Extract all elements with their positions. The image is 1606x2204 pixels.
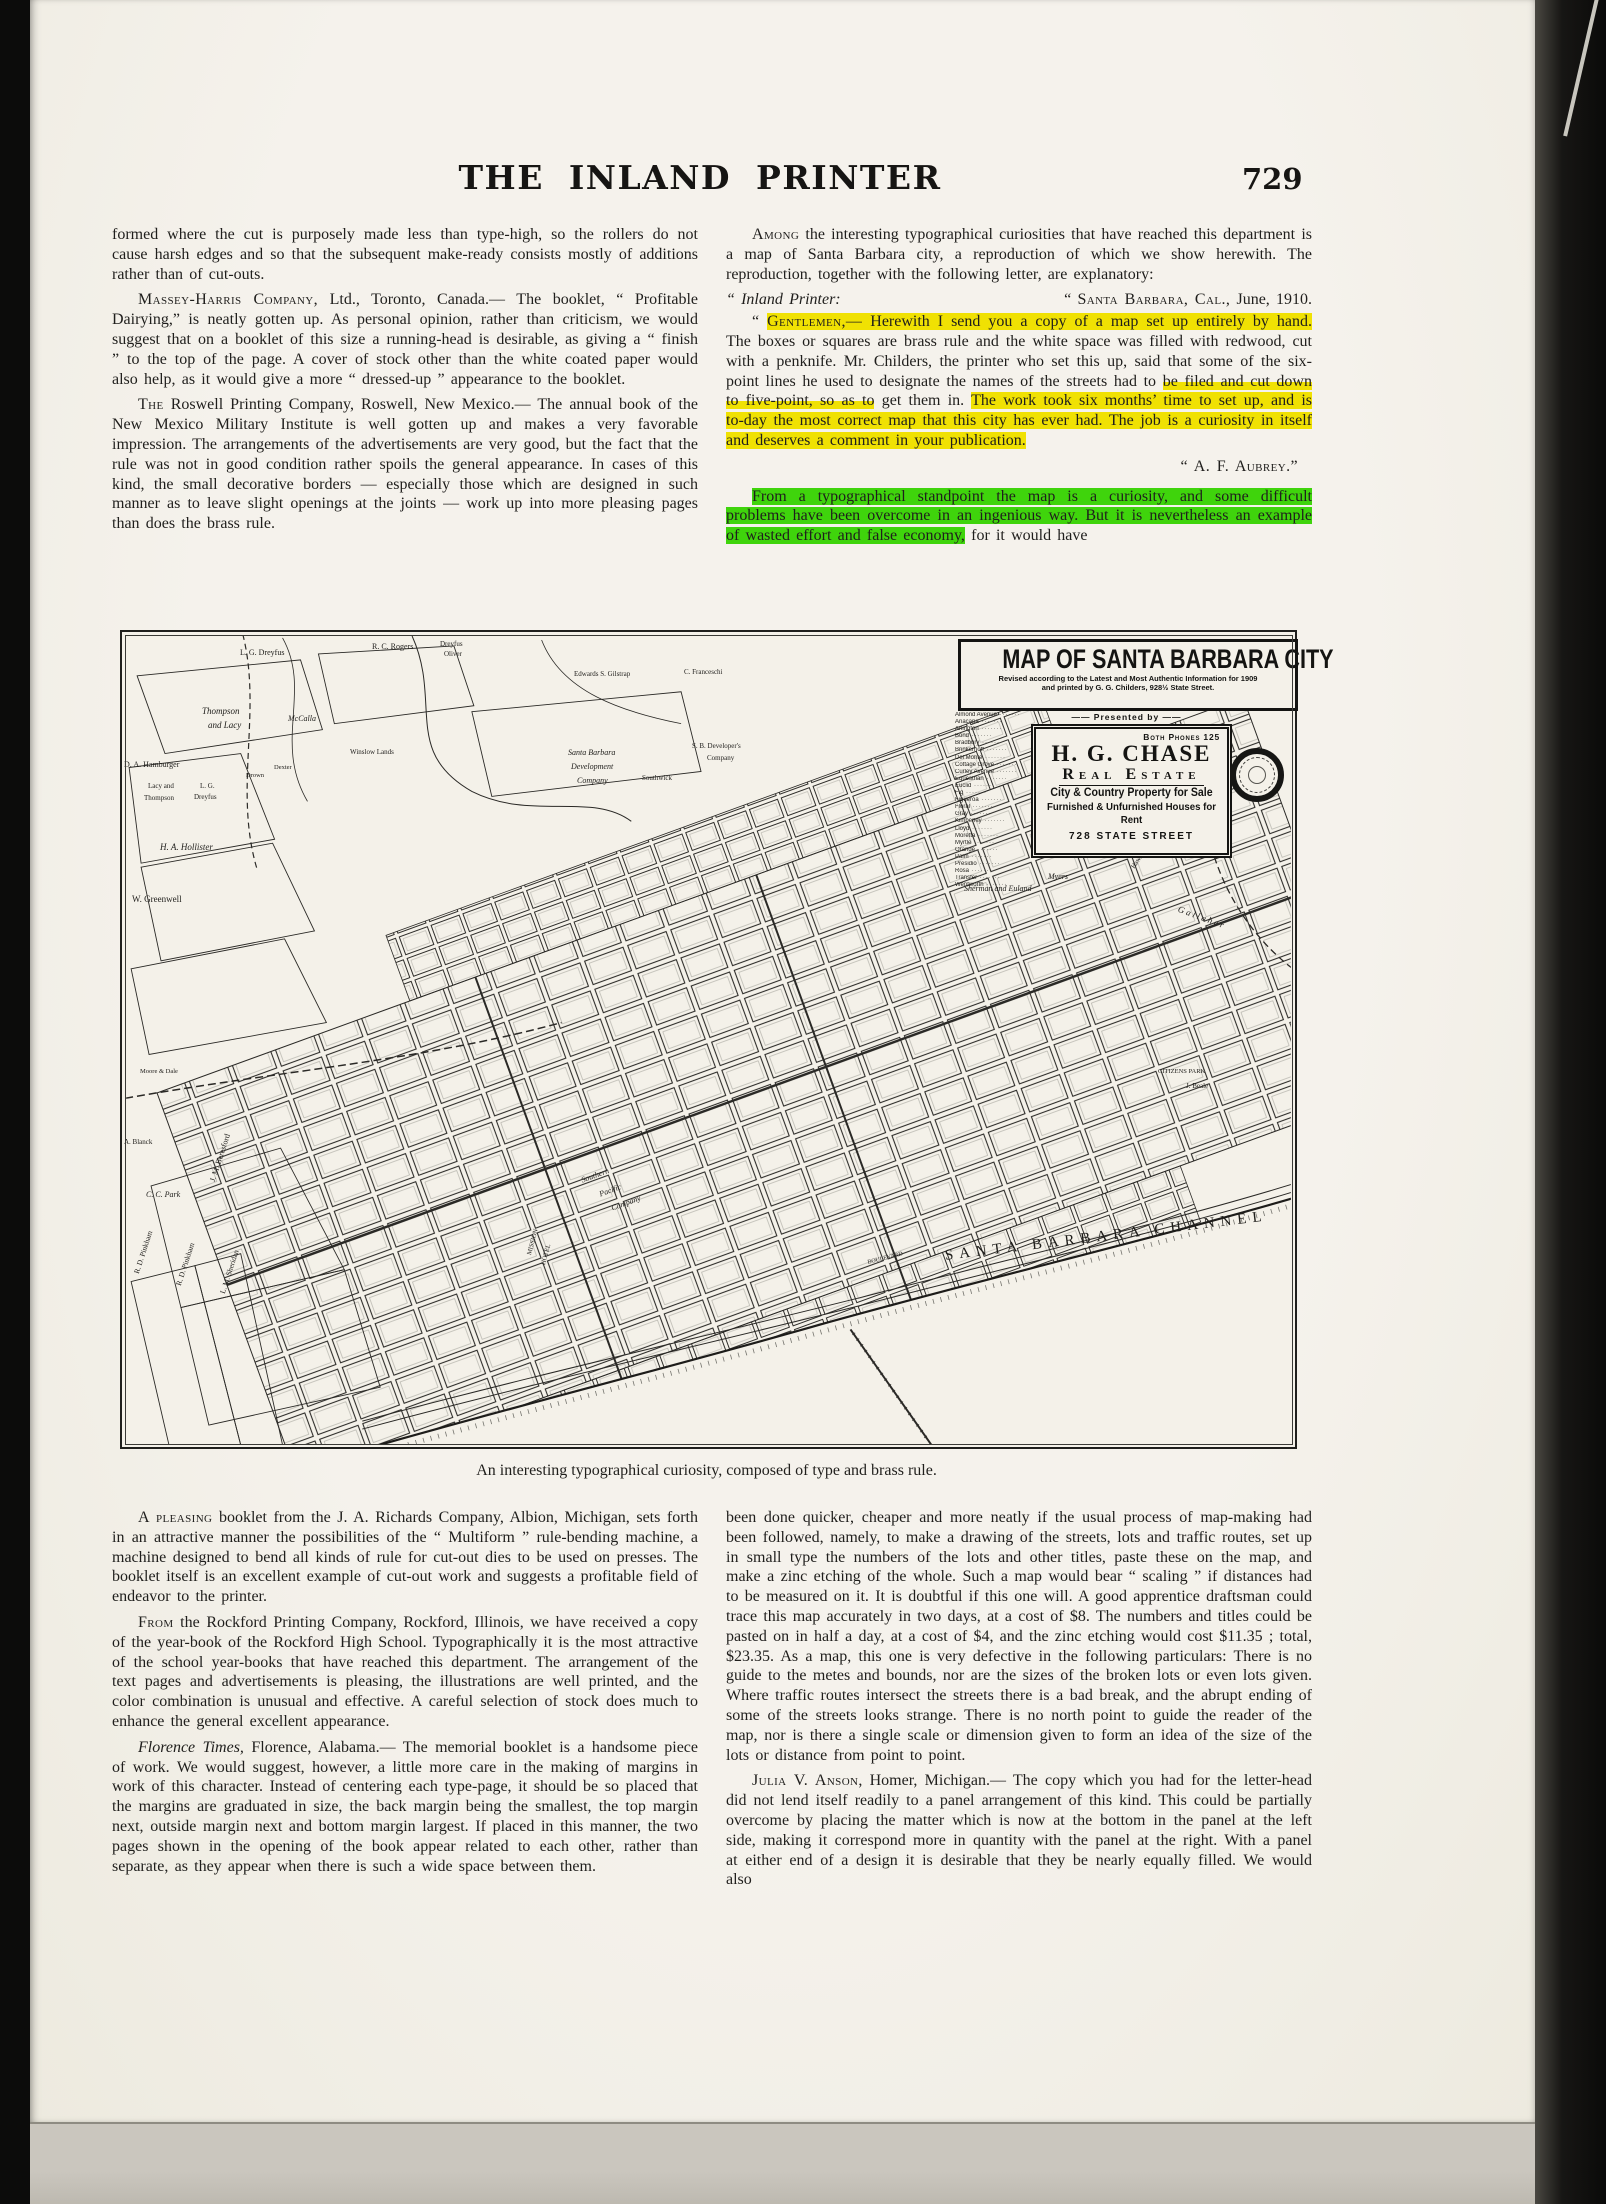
street-index-row: Presidio	[955, 861, 1029, 868]
ad-service-line: Furnished & Unfurnished Houses for Rent	[1044, 801, 1220, 827]
map-label: Edwards S. Gilstrap	[574, 670, 630, 678]
street-index-row: Arlington	[955, 726, 1029, 733]
paragraph-lead: Among	[752, 226, 799, 243]
map-label: J. M. Beresford	[208, 1133, 232, 1183]
scanned-magazine-page: { "header": { "title": "THE INLAND PRINT…	[0, 0, 1606, 2204]
map-label: J. Beale	[1186, 1082, 1208, 1090]
map-label: L. M. Sheridan	[218, 1249, 241, 1295]
street-index-row: Curley Avenue	[955, 769, 1029, 776]
bottom-right-column: been done quicker, cheaper and more neat…	[726, 1508, 1312, 1896]
ad-company-name: H. G. CHASE	[1036, 742, 1227, 766]
street-index-row: Wentworth	[955, 882, 1029, 889]
street-index: Almond AvenueAnacapaArlingtonBondBradbur…	[955, 712, 1029, 889]
city-seal-icon	[1230, 748, 1284, 802]
map-label: Pacific	[598, 1182, 622, 1198]
street-index-row: Brinkerhoff	[955, 747, 1029, 754]
ad-business-line: Real Estate	[1059, 766, 1203, 786]
street-index-row: Moretta	[955, 833, 1029, 840]
letter-dateline: “ Santa Barbara, Cal., June, 1910.	[1064, 290, 1312, 310]
map-label: Dexter	[274, 764, 292, 771]
figure-caption: An interesting typographical curiosity, …	[120, 1462, 1293, 1480]
paragraph-text: the interesting typographical curiositie…	[726, 226, 1312, 283]
map-label: HOTEL	[540, 1243, 552, 1265]
map-label: C. C. Park	[146, 1190, 180, 1199]
scan-bottom-edge	[30, 2122, 1535, 2204]
map-label: Southern	[580, 1166, 610, 1184]
highlighted-text: Gentlemen,—	[767, 313, 862, 330]
street-index-row: Equestrian	[955, 776, 1029, 783]
bottom-columns: A pleasing booklet from the J. A. Richar…	[112, 1508, 1312, 1896]
map-label: D. A. Hamburger	[124, 760, 179, 769]
map-label: Moore & Dale	[140, 1068, 178, 1075]
paragraph-lead: Florence Times,	[138, 1739, 244, 1756]
street-index-row: Del Monte	[955, 755, 1029, 762]
map-label: C. Franceschi	[684, 668, 723, 676]
page-number: 729	[1242, 162, 1303, 196]
map-label: Thompson	[144, 794, 174, 802]
map-label: BOULEVARD	[867, 1251, 904, 1266]
paragraph: A pleasing booklet from the J. A. Richar…	[112, 1508, 698, 1607]
paragraph: Among the interesting typographical curi…	[726, 225, 1312, 284]
street-index-row: Orange	[955, 847, 1029, 854]
map-label: R. D. Pinkham	[174, 1242, 196, 1287]
map-label: Winslow Lands	[350, 748, 394, 756]
paragraph: formed where the cut is purposely made l…	[112, 225, 698, 284]
street-index-row: Lloyd	[955, 826, 1029, 833]
ad-address: 728 STATE STREET	[1036, 831, 1227, 842]
map-label: Santa Barbara	[568, 748, 615, 757]
presented-by-label: —— Presented by ——	[1031, 712, 1222, 722]
letter-head: “ Inland Printer: “ Santa Barbara, Cal.,…	[726, 290, 1312, 310]
top-columns: formed where the cut is purposely made l…	[112, 225, 1312, 552]
street-index-row: Bradbury	[955, 740, 1029, 747]
map-label: Thompson	[202, 706, 240, 716]
map-label: W. Greenwell	[132, 894, 182, 904]
paragraph-lead: A pleasing	[138, 1509, 212, 1526]
map-label: Oliver	[444, 650, 462, 658]
paragraph-lead: The	[138, 396, 164, 413]
paragraph-text: , Homer, Michigan.— The copy which you h…	[726, 1772, 1312, 1888]
street-index-row: Transfer	[955, 875, 1029, 882]
map-subtitle: and printed by G. G. Childers, 928½ Stat…	[961, 683, 1295, 692]
paragraph: Julia V. Anson, Homer, Michigan.— The co…	[726, 1771, 1312, 1890]
street-index-row: Euclid	[955, 783, 1029, 790]
paragraph-text: Florence, Alabama.— The memorial booklet…	[112, 1739, 698, 1875]
paragraph-text: Roswell Printing Company, Roswell, New M…	[112, 396, 698, 532]
map-label: Lacy and	[148, 782, 174, 790]
map-label: CITIZENS PARK	[1158, 1068, 1205, 1075]
paragraph: Massey-Harris Company, Ltd., Toronto, Ca…	[112, 290, 698, 389]
map-title: MAP OF SANTA BARBARA CITY	[1002, 644, 1333, 674]
map-label: L. G. Dreyfus	[240, 648, 284, 657]
map-title-block: MAP OF SANTA BARBARA CITY Revised accord…	[958, 639, 1298, 711]
street-index-row: Anacapa	[955, 719, 1029, 726]
quote-mark: “	[1064, 291, 1077, 308]
map-label: A. Blanck	[124, 1138, 152, 1146]
paragraph-lead: From	[138, 1614, 174, 1631]
top-right-column: Among the interesting typographical curi…	[726, 225, 1312, 552]
letter-signature: “ A. F. Aubrey.”	[726, 457, 1312, 477]
quote-mark: “	[752, 313, 767, 330]
paragraph-lead: Massey-Harris Company,	[138, 291, 318, 308]
street-index-row: Cottage Grove	[955, 762, 1029, 769]
real-estate-ad: Both Phones 125 H. G. CHASE Real Estate …	[1031, 724, 1232, 858]
street-index-row: Kimberley	[955, 818, 1029, 825]
map-label: Company	[577, 776, 608, 785]
map-figure: L. G. DreyfusR. C. RogersDreyfusOliverEd…	[120, 630, 1297, 1449]
map-label: H. A. Hollister	[160, 842, 213, 852]
scan-right-edge	[1535, 0, 1606, 2204]
letter-addressee: “ Inland Printer:	[726, 290, 841, 310]
dateline-place: Santa Barbara, Cal.,	[1077, 291, 1230, 308]
map-label: MISSION	[526, 1228, 540, 1256]
map-label: Dreyfus	[440, 640, 463, 648]
map-label: R. D. Pinkham	[132, 1230, 154, 1275]
map-label: and Lacy	[208, 720, 241, 730]
paragraph-text: the Rockford Printing Company, Rockford,…	[112, 1614, 698, 1730]
paragraph-text: for it would have	[965, 527, 1088, 544]
street-index-row: Rosa	[955, 868, 1029, 875]
paragraph-lead: Julia V. Anson	[752, 1772, 858, 1789]
highlighted-text: Herewith I send you a copy of a map set …	[862, 313, 1312, 330]
street-index-row: Myrtle	[955, 840, 1029, 847]
street-index-row: Figueroa	[955, 797, 1029, 804]
street-index-row: Fig	[955, 790, 1029, 797]
paragraph: been done quicker, cheaper and more neat…	[726, 1508, 1312, 1765]
letter-text: get them in.	[874, 392, 971, 409]
dateline-date: June, 1910.	[1230, 291, 1312, 308]
paragraph: The Roswell Printing Company, Roswell, N…	[112, 395, 698, 534]
paragraph: Florence Times, Florence, Alabama.— The …	[112, 1738, 698, 1877]
map-subtitle: Revised according to the Latest and Most…	[961, 674, 1295, 683]
street-index-row: Palm	[955, 854, 1029, 861]
map-label: G a l l a h e r	[1177, 904, 1226, 930]
bottom-left-column: A pleasing booklet from the J. A. Richar…	[112, 1508, 698, 1896]
map-label: L. G.	[200, 782, 215, 790]
paragraph: From a typographical standpoint the map …	[726, 487, 1312, 546]
map-label: Company	[610, 1194, 642, 1213]
map-label: Company	[707, 754, 734, 762]
map-label: McCalla	[288, 714, 316, 723]
top-left-column: formed where the cut is purposely made l…	[112, 225, 698, 552]
map-label: Myers	[1048, 872, 1068, 881]
map-label: R. C. Rogers	[372, 642, 413, 651]
map-label: Dreyfus	[194, 793, 217, 801]
letter-body: “ Gentlemen,— Herewith I send you a copy…	[726, 312, 1312, 451]
street-index-row: Almond Avenue	[955, 712, 1029, 719]
ad-service-line: City & Country Property for Sale	[1044, 786, 1220, 801]
street-index-row: Bond	[955, 733, 1029, 740]
street-index-row: Gray	[955, 811, 1029, 818]
map-label: S. B. Developer's	[692, 742, 741, 750]
map-label: Development	[571, 762, 613, 771]
map-label: Drown	[246, 772, 264, 779]
page-title: THE INLAND PRINTER	[400, 158, 1000, 197]
paragraph: From the Rockford Printing Company, Rock…	[112, 1613, 698, 1732]
street-index-row: Floral	[955, 804, 1029, 811]
map-label: Southwick	[642, 774, 672, 782]
